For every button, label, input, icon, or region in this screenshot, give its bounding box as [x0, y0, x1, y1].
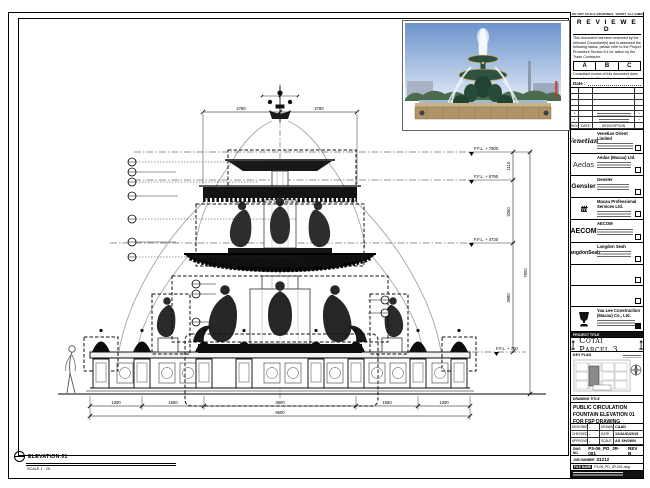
- contractor-name: Yau Lee Construction (Macau) Co., Ltd.: [597, 309, 642, 318]
- plot-microtext: [573, 472, 623, 476]
- venetian-logo: Venetian: [571, 130, 596, 153]
- consultant-venetian: Venetian Venetian Orient Limited: [571, 130, 643, 154]
- aedas-logo: Aedas: [571, 154, 596, 175]
- dwg-no-label: DWG NO.: [573, 447, 586, 455]
- consultant-address: [597, 211, 631, 217]
- key-plan-ref: [623, 355, 641, 358]
- rev-header: REV: [571, 123, 579, 129]
- approved-value: -: [588, 438, 600, 445]
- photo-person: [544, 111, 549, 116]
- consultant-name: Macau Professional Services Ltd.: [597, 200, 642, 209]
- date-label: Date :: [573, 81, 586, 86]
- rev-value: REV B: [628, 446, 641, 456]
- stamp-body: This document has been reviewed by the r…: [573, 36, 641, 59]
- project-title: Cotai Parcel 3: [579, 338, 635, 352]
- consultant-name: Gensler: [597, 178, 642, 183]
- job-label: JOB NUMBER: [573, 458, 594, 462]
- rev-header: DATE: [579, 123, 593, 129]
- stamp-checkbox: [635, 211, 641, 217]
- empty-box: [571, 265, 643, 286]
- mps-logo: ttt: [571, 198, 596, 219]
- stamp-date-row: Date :: [571, 79, 643, 88]
- drawing-title-label: DRAWING TITLE: [571, 397, 643, 403]
- review-stamp: R E V I E W E D This document has been r…: [571, 17, 643, 79]
- drawn-value: CAAD: [614, 424, 643, 431]
- revision-table: ** ** REV DATE DESCRIPTION: [571, 88, 643, 130]
- consultant-address: [597, 229, 633, 237]
- consultant-name: Aedas (Macau) Ltd.: [597, 156, 642, 161]
- dwg-no-value: P3-06_PD_JR-001: [588, 446, 624, 456]
- stamp-checkbox: [635, 256, 641, 262]
- drawing-title-box: DRAWING TITLE PUBLIC CIRCULATION FOUNTAI…: [571, 396, 643, 424]
- info-table: DESIGNED - DRAWN CAAD CHECKED - DATE 12/…: [571, 424, 643, 446]
- scale-label: SCALE: [600, 438, 614, 445]
- date-value: 12/AUG/2015: [614, 431, 643, 438]
- consultant-mps: ttt Macau Professional Services Ltd.: [571, 198, 643, 220]
- key-plan-parcel-highlight: [589, 366, 599, 386]
- consultant-address: [597, 251, 631, 259]
- photo-basin-wall: [415, 103, 551, 119]
- contractor-box: Yau Lee Construction (Macau) Co., Ltd.: [571, 307, 643, 332]
- key-plan-map: [573, 358, 642, 394]
- job-value: 31212: [596, 457, 609, 462]
- job-number-row: JOB NUMBER 31212: [571, 456, 643, 464]
- photo-person: [420, 111, 425, 116]
- file-value: P3-06_PD_JR-001.dwg: [594, 465, 630, 469]
- consultant-name: Langdon Seah: [597, 245, 642, 250]
- drawn-label: DRAWN: [600, 424, 614, 431]
- stamp-checkbox: [635, 145, 641, 151]
- view-title: ELEVATION 01 SCALE 1 : 25: [14, 451, 214, 471]
- designed-label: DESIGNED: [571, 424, 588, 431]
- consultant-langdonseah: LangdonSeah Langdon Seah: [571, 243, 643, 265]
- stamp-title: R E V I E W E D: [573, 18, 641, 35]
- yaulee-logo-icon: [571, 307, 596, 331]
- photo-watermark: [555, 81, 558, 97]
- lamp-icon: [571, 339, 575, 351]
- consultant-address: [597, 143, 633, 151]
- drawing-title-line: PUBLIC CIRCULATION: [573, 405, 641, 412]
- langdonseah-logo: LangdonSeah: [571, 243, 596, 264]
- checked-value: -: [588, 431, 600, 438]
- drawing-sheet: 2780 2780: [0, 0, 650, 488]
- consultant-name: Venetian Orient Limited: [597, 132, 642, 141]
- consultant-address: [597, 184, 629, 192]
- view-title-rule: [26, 463, 176, 466]
- stamp-checkbox: [635, 234, 641, 240]
- key-plan-label: KEY PLAN: [573, 353, 591, 357]
- project-banner: Cotai Parcel 3: [571, 338, 643, 352]
- empty-stamp-boxes: [571, 265, 643, 307]
- empty-box: [571, 286, 643, 307]
- drawing-title-line: FOUNTAIN ELEVATION 01: [573, 412, 641, 419]
- consultant-address: [597, 162, 631, 170]
- grade-b: B: [596, 62, 618, 70]
- grade-a: A: [574, 62, 596, 70]
- consultant-gensler: Gensler Gensler: [571, 176, 643, 198]
- date-label: DATE: [600, 431, 614, 438]
- file-label: FILE NAME: [573, 465, 592, 469]
- file-name-row: FILE NAME P3-06_PD_JR-001.dwg: [571, 464, 643, 471]
- stamp-checkbox: [635, 277, 641, 283]
- scale-value: AS SHOWN: [614, 438, 643, 445]
- stamp-checkbox: [635, 189, 641, 195]
- compass-icon: [630, 363, 643, 376]
- gensler-logo: Gensler: [571, 176, 596, 197]
- plot-info-row: [571, 471, 643, 478]
- checked-label: CHECKED: [571, 431, 588, 438]
- stamp-checkbox: [635, 298, 641, 304]
- fountain-photo: [402, 20, 570, 131]
- consultant-aecom: AECOM AECOM: [571, 220, 643, 242]
- stamp-checkbox: [635, 167, 641, 173]
- grade-c: C: [619, 62, 640, 70]
- approved-label: APPROVED: [571, 438, 588, 445]
- consultant-name: AECOM: [597, 222, 642, 227]
- dwg-number-row: DWG NO. P3-06_PD_JR-001 REV B: [571, 446, 643, 456]
- aecom-logo: AECOM: [571, 220, 596, 241]
- view-number-bubble: [14, 451, 25, 462]
- stamp-checkbox: [635, 323, 641, 329]
- key-plan: KEY PLAN: [571, 352, 643, 396]
- rev-header: DESCRIPTION: [593, 123, 635, 129]
- lamp-icon: [639, 339, 643, 351]
- date-fill-line: [588, 81, 641, 86]
- view-scale-text: SCALE 1 : 25: [27, 467, 214, 471]
- designed-value: -: [588, 424, 600, 431]
- consultant-list: Venetian Venetian Orient Limited Aedas A…: [571, 130, 643, 265]
- title-block: DO NOT SCALE DRAWINGS. VERIFY ALL DIMENS…: [570, 12, 643, 478]
- contractor-address: [597, 320, 635, 328]
- stamp-disclaimer: Consultant review of this document does …: [573, 72, 641, 79]
- stamp-grade-boxes: A B C: [573, 61, 641, 71]
- consultant-aedas: Aedas Aedas (Macau) Ltd.: [571, 154, 643, 176]
- view-title-text: ELEVATION 01: [28, 454, 68, 460]
